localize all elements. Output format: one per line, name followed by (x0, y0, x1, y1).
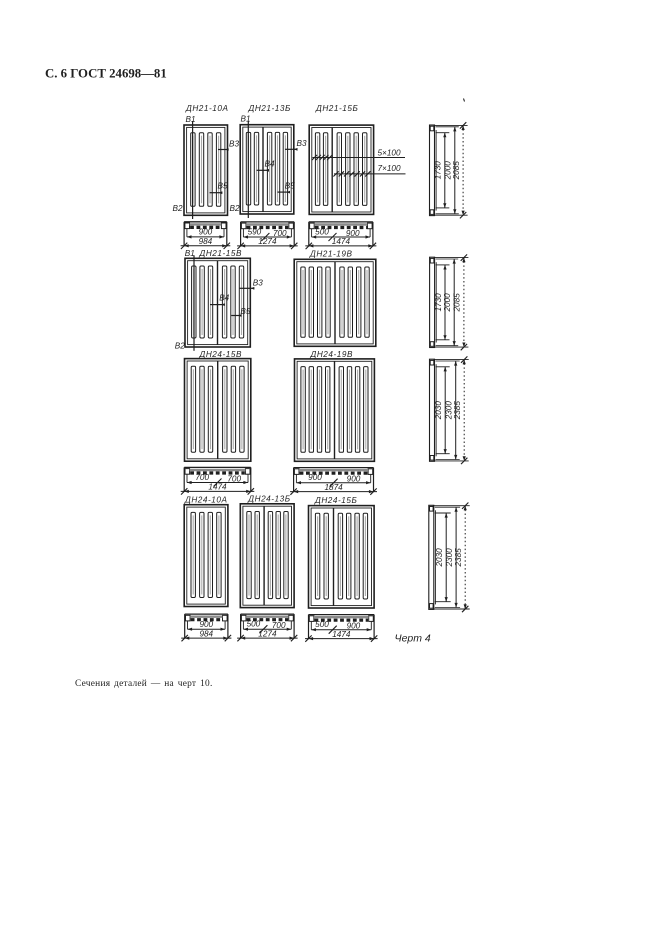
svg-text:500: 500 (315, 227, 329, 236)
svg-text:В3: В3 (297, 139, 307, 148)
svg-text:1274: 1274 (258, 629, 277, 638)
svg-text:ДН21-15Б: ДН21-15Б (315, 104, 358, 113)
svg-text:В1: В1 (186, 115, 196, 124)
svg-text:900: 900 (199, 228, 213, 237)
svg-text:7×100: 7×100 (378, 164, 401, 173)
svg-text:984: 984 (199, 629, 213, 638)
svg-text:590: 590 (248, 227, 262, 236)
svg-text:В5: В5 (285, 181, 295, 190)
svg-text:В5: В5 (240, 307, 250, 316)
svg-text:900: 900 (199, 620, 213, 629)
svg-text:В1: В1 (185, 249, 195, 258)
svg-text:2085: 2085 (452, 161, 461, 181)
svg-text:В5: В5 (218, 182, 228, 191)
svg-text:1274: 1274 (258, 237, 277, 246)
svg-text:Сечения деталей — на черт 1: Сечения деталей — на черт 10. (75, 678, 213, 689)
svg-text:ДН24-15Б: ДН24-15Б (314, 496, 357, 505)
svg-text:2385: 2385 (454, 548, 463, 568)
svg-text:В4: В4 (219, 294, 229, 303)
svg-text:ДН24-10А: ДН24-10А (184, 495, 227, 504)
svg-text:1474: 1474 (332, 630, 351, 639)
svg-text:500: 500 (247, 620, 261, 629)
svg-text:1874: 1874 (324, 483, 343, 492)
svg-text:ДН21-13Б: ДН21-13Б (248, 104, 291, 113)
svg-text:Черт 4: Черт 4 (395, 633, 431, 645)
svg-text:900: 900 (347, 475, 361, 484)
svg-text:2300: 2300 (445, 548, 454, 568)
svg-text:В4: В4 (265, 160, 275, 169)
svg-text:2000: 2000 (443, 293, 452, 313)
svg-text:ДН21-15В: ДН21-15В (199, 249, 242, 258)
svg-text:500: 500 (315, 620, 329, 629)
svg-text:В2: В2 (175, 341, 185, 350)
svg-text:900: 900 (308, 473, 322, 482)
svg-text:ДН21-10А: ДН21-10А (185, 104, 228, 113)
svg-text:В3: В3 (229, 140, 239, 149)
svg-text:ДН24-15В: ДН24-15В (199, 350, 242, 359)
svg-text:ДН24-13Б: ДН24-13Б (247, 494, 290, 503)
svg-text:1474: 1474 (332, 237, 351, 246)
svg-text:ДН21-19В: ДН21-19В (309, 249, 352, 258)
svg-text:С. 6 ГОСТ 24698—81: С. 6 ГОСТ 24698—81 (45, 67, 167, 81)
svg-text:2085: 2085 (453, 293, 462, 313)
svg-text:В1: В1 (241, 115, 251, 124)
svg-text:984: 984 (199, 237, 213, 246)
svg-text:700: 700 (195, 473, 209, 482)
svg-text:700: 700 (227, 474, 241, 483)
svg-text:2030: 2030 (435, 548, 444, 568)
svg-text:1730: 1730 (434, 161, 443, 180)
svg-text:В2: В2 (173, 204, 183, 213)
svg-text:2030: 2030 (434, 401, 443, 421)
svg-text:2385: 2385 (453, 401, 462, 421)
svg-text:В3: В3 (253, 278, 263, 287)
svg-text:5×100: 5×100 (378, 148, 401, 157)
svg-text:В2: В2 (230, 204, 240, 213)
svg-text:1474: 1474 (208, 483, 227, 492)
svg-text:1730: 1730 (434, 293, 443, 312)
svg-text:ДН24-19В: ДН24-19В (310, 350, 353, 359)
